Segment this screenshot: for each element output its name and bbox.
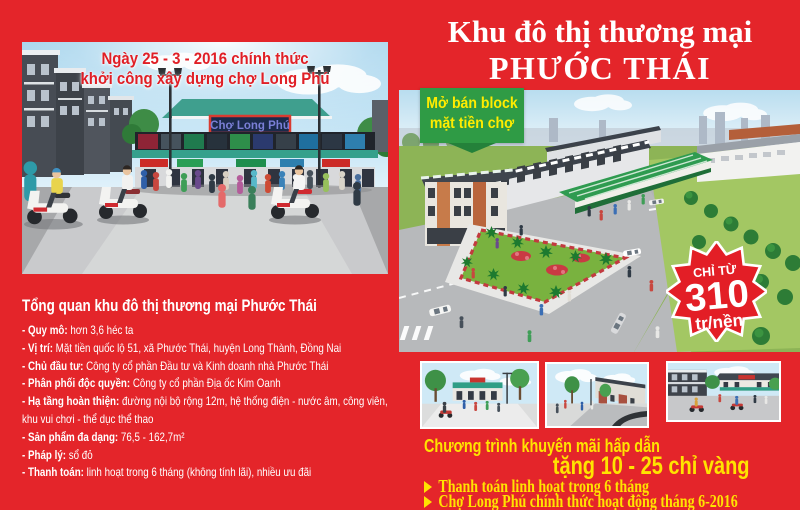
overview-item: - Vị trí: Mặt tiền quốc lộ 51, xã Phước … [22,340,399,358]
market-photo: Chợ Long Phú [22,42,388,274]
street-thumbnail-2 [545,362,649,428]
ribbon-line2: mặt tiền chợ [426,114,518,134]
photo-caption: Ngày 25 - 3 - 2016 chính thức khởi công … [44,49,366,88]
overview-item: - Phân phối độc quyền: Công ty cổ phần Đ… [22,375,399,393]
promo-bullet-2-text: Chợ Long Phú chính thức hoạt động tháng … [438,491,737,510]
thumbnail2-illustration [547,364,647,426]
flyer-page: Chợ Long Phú [0,0,800,510]
overview-item: - Sản phẩm đa dạng: 76,5 - 162,7m² [22,429,399,447]
overview-heading: Tổng quan khu đô thị thương mại Phước Th… [22,297,399,316]
ribbon-badge: Mở bán block mặt tiền chợ [420,88,524,154]
photo-caption-line1: Ngày 25 - 3 - 2016 chính thức [44,49,366,69]
overview-item: - Hạ tầng hoàn thiện: đường nội bộ rộng … [22,393,399,429]
starburst-icon: CHỈ TỪ 310 tr/nền [666,241,767,342]
photo-caption-line2: khởi công xây dựng chợ Long Phú [44,69,366,89]
street-thumbnail-1 [420,361,539,429]
thumbnail3-illustration [668,363,779,420]
overview-list: - Quy mô: hơn 3,6 héc ta - Vị trí: Mặt t… [22,322,399,482]
overview-item: - Pháp lý: sổ đỏ [22,447,399,465]
bullet-arrow-icon [424,496,432,508]
project-title-line2: PHƯỚC THÁI [400,50,800,86]
ribbon-badge-tail [448,143,496,153]
price-starburst-badge: CHỈ TỪ 310 tr/nền [666,241,767,342]
promo-block: Chương trình khuyến mãi hấp dẫn tặng 10 … [424,436,800,510]
overview-item: - Thanh toán: linh hoạt trong 6 tháng (k… [22,464,399,482]
ribbon-badge-text: Mở bán block mặt tiền chợ [426,94,518,134]
project-title: Khu đô thị thương mại PHƯỚC THÁI [400,14,800,86]
street-thumbnail-3 [666,361,781,422]
plaza-pavement [22,187,388,274]
project-overview: Tổng quan khu đô thị thương mại Phước Th… [22,297,399,482]
project-title-line1: Khu đô thị thương mại [400,14,800,50]
overview-item: - Quy mô: hơn 3,6 héc ta [22,322,399,340]
price-badge-unit: tr/nền [695,310,744,334]
promo-bullet-2: Chợ Long Phú chính thức hoạt động tháng … [424,491,738,510]
overview-item: - Chủ đầu tư: Công ty cổ phần Đầu tư và … [22,358,399,376]
market-sign-text: Chợ Long Phú [210,120,290,132]
thumbnail1-illustration [422,363,537,427]
ribbon-line1: Mở bán block [426,94,518,114]
